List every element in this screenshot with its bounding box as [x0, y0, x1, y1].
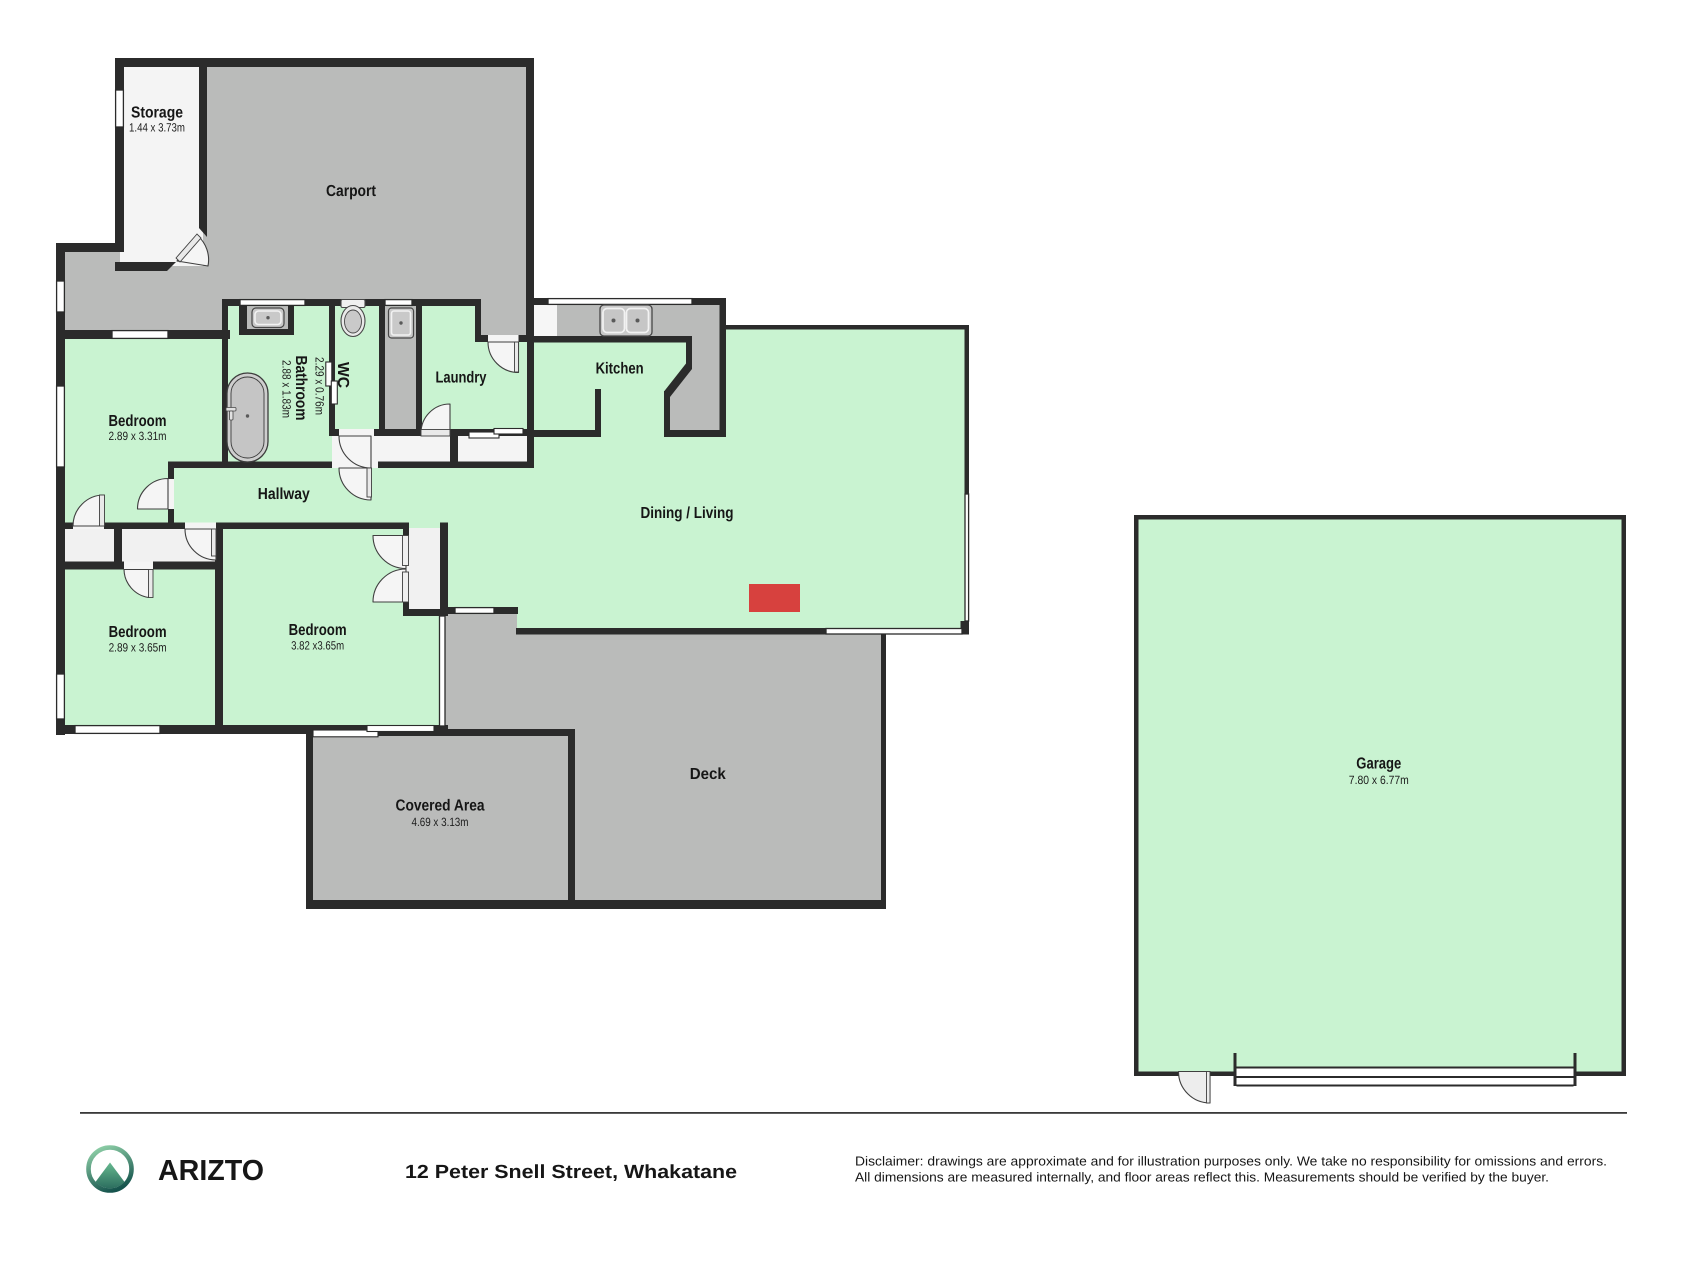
svg-text:Deck: Deck [690, 766, 726, 783]
svg-text:Kitchen: Kitchen [596, 361, 644, 378]
svg-text:3.82 x3.65m: 3.82 x3.65m [291, 639, 344, 653]
svg-text:Covered Area: Covered Area [396, 798, 485, 815]
svg-text:Garage: Garage [1356, 756, 1401, 773]
svg-text:7.80 x 6.77m: 7.80 x 6.77m [1349, 773, 1409, 787]
svg-text:ARIZTO: ARIZTO [158, 1155, 264, 1187]
svg-text:12 Peter Snell Street, Whakata: 12 Peter Snell Street, Whakatane [405, 1162, 737, 1183]
svg-text:Laundry: Laundry [436, 370, 487, 387]
svg-text:2.89 x 3.65m: 2.89 x 3.65m [109, 641, 167, 655]
svg-text:Dining / Living: Dining / Living [641, 505, 734, 522]
svg-text:2.89 x 3.31m: 2.89 x 3.31m [109, 429, 167, 443]
svg-text:WC: WC [334, 362, 351, 388]
svg-text:Carport: Carport [326, 183, 377, 200]
svg-text:Bedroom: Bedroom [289, 622, 347, 639]
svg-text:2.29 x 0.76m: 2.29 x 0.76m [313, 357, 327, 415]
svg-text:Bedroom: Bedroom [109, 624, 167, 641]
svg-text:1.44 x 3.73m: 1.44 x 3.73m [129, 121, 185, 135]
svg-text:4.69 x 3.13m: 4.69 x 3.13m [412, 815, 469, 829]
svg-text:Disclaimer: drawings are appro: Disclaimer: drawings are approximate and… [855, 1154, 1607, 1169]
svg-text:All dimensions are measured in: All dimensions are measured internally, … [855, 1170, 1549, 1185]
svg-text:Hallway: Hallway [258, 486, 310, 503]
svg-text:Bathroom: Bathroom [292, 356, 309, 421]
svg-text:Storage: Storage [131, 105, 183, 122]
svg-text:Bedroom: Bedroom [109, 413, 167, 430]
svg-text:2.88 x 1.83m: 2.88 x 1.83m [280, 360, 294, 418]
